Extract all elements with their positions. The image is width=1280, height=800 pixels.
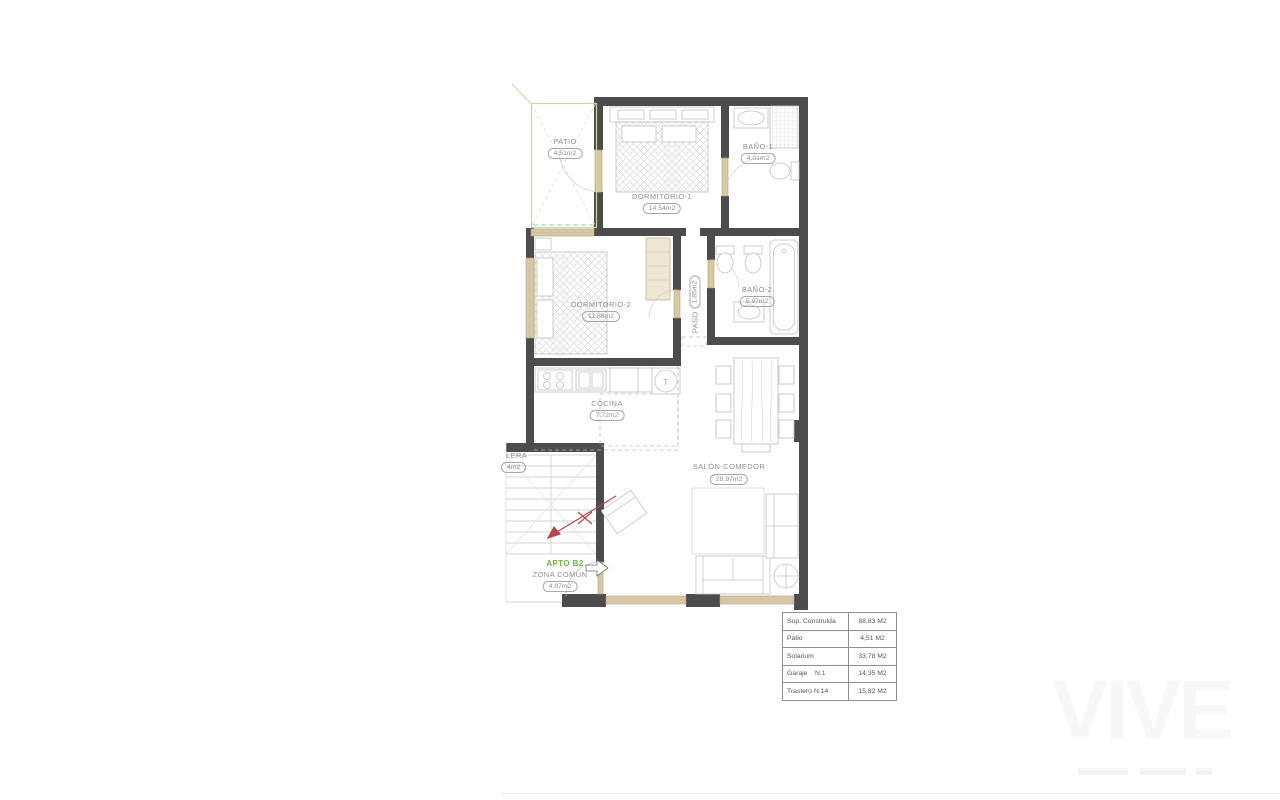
shower-icon (770, 106, 798, 148)
nightstand-icon (535, 238, 551, 250)
table-row: Trastero N.14 15,82 M2 (783, 683, 897, 701)
row-label: Garaje N.1 (783, 665, 849, 683)
rug (692, 488, 764, 554)
chair-icon (779, 420, 794, 438)
chair-icon (716, 394, 731, 412)
toilet-icon (791, 162, 799, 180)
row-value: 14,35 M2 (849, 665, 897, 683)
room-label-patio: PATIO (553, 137, 576, 146)
room-label-dormitorio1: DORMITORIO-1 (632, 192, 692, 201)
wardrobe-icon (646, 238, 670, 300)
chair-icon (716, 366, 731, 384)
row-label: Trastero N.14 (783, 683, 849, 701)
stove-icon (538, 370, 572, 390)
room-area-zona-comun: 4.87m2 (543, 581, 578, 592)
row-value: 15,82 M2 (849, 683, 897, 701)
kitchen-sink-icon (576, 370, 606, 390)
table-row: Solarium 33,78 M2 (783, 648, 897, 666)
table-row: Garaje N.1 14,35 M2 (783, 665, 897, 683)
apartment-tag: APTO B2 (546, 559, 583, 568)
kitchen-fixtures (535, 368, 680, 394)
room-area-patio: 4.51m2 (548, 148, 583, 159)
water-heater-label: T (663, 378, 668, 387)
room-label-bano1: BAÑO-1 (743, 142, 773, 151)
row-label: Patio (783, 630, 849, 648)
chair-icon (779, 394, 794, 412)
room-area-salon: 28.97m2 (710, 474, 748, 485)
room-label-escalera: LERA (506, 451, 527, 460)
room-label-paso: PASO 1.85m2 (690, 274, 701, 336)
room-area-escalera: 4m2 (501, 462, 526, 473)
armchair-icon (601, 490, 647, 534)
room-area-bano1: 4.01m2 (741, 153, 776, 164)
room-label-bano2: BAÑO-2 (742, 285, 772, 294)
room-label-cocina: COCINA (591, 399, 623, 408)
room-label-dormitorio2: DORMITORIO-2 (571, 300, 631, 309)
table-row: Patio 4,51 M2 (783, 630, 897, 648)
bath2-door-leaf (708, 260, 714, 288)
living-furniture (601, 488, 798, 594)
watermark-text: VIVE (1052, 668, 1231, 752)
watermark-tagline-bar (1078, 768, 1128, 775)
room-label-salon: SALÓN-COMEDOR (693, 462, 765, 471)
chair-icon (716, 420, 731, 438)
row-value: 88,83 M2 (849, 613, 897, 631)
apartment-entry-arrow-icon (586, 560, 608, 576)
bedroom1-furniture (610, 107, 714, 192)
room-area-cocina: 7.72m2 (590, 410, 625, 421)
bathtub-icon (770, 240, 798, 334)
bedroom2-furniture (535, 238, 607, 354)
table-row: Sup. Construida 88,83 M2 (783, 613, 897, 631)
paso-label: PASO (691, 311, 700, 333)
watermark-tagline-bar (1140, 768, 1186, 775)
pillow-icon (537, 300, 553, 338)
room-area-dormitorio1: 14.54m2 (643, 203, 681, 214)
row-value: 4,51 M2 (849, 630, 897, 648)
scan-edge-line (500, 793, 1280, 794)
surface-summary-table: Sup. Construida 88,83 M2 Patio 4,51 M2 S… (782, 612, 897, 701)
row-label: Solarium (783, 648, 849, 666)
appliance-icon (610, 368, 638, 392)
dining-set (716, 358, 794, 452)
room-area-dormitorio2: 11.88m2 (582, 311, 620, 322)
pillow-icon (622, 126, 656, 142)
bedroom2-door-leaf (674, 290, 680, 318)
row-label: Sup. Construida (783, 613, 849, 631)
bath1-door-leaf (722, 158, 728, 196)
floor-plan-page: PATIO 4.51m2 DORMITORIO-1 14.54m2 BAÑO-1… (0, 0, 1280, 800)
paso-area: 1.85m2 (690, 276, 701, 309)
room-label-zona-comun: ZONA COMÚN (533, 570, 588, 579)
pillow-icon (537, 258, 553, 296)
pillow-icon (662, 126, 696, 142)
watermark-tagline-bar (1196, 768, 1212, 775)
row-value: 33,78 M2 (849, 648, 897, 666)
room-area-bano2: 5.97m2 (740, 296, 775, 307)
chair-icon (779, 366, 794, 384)
